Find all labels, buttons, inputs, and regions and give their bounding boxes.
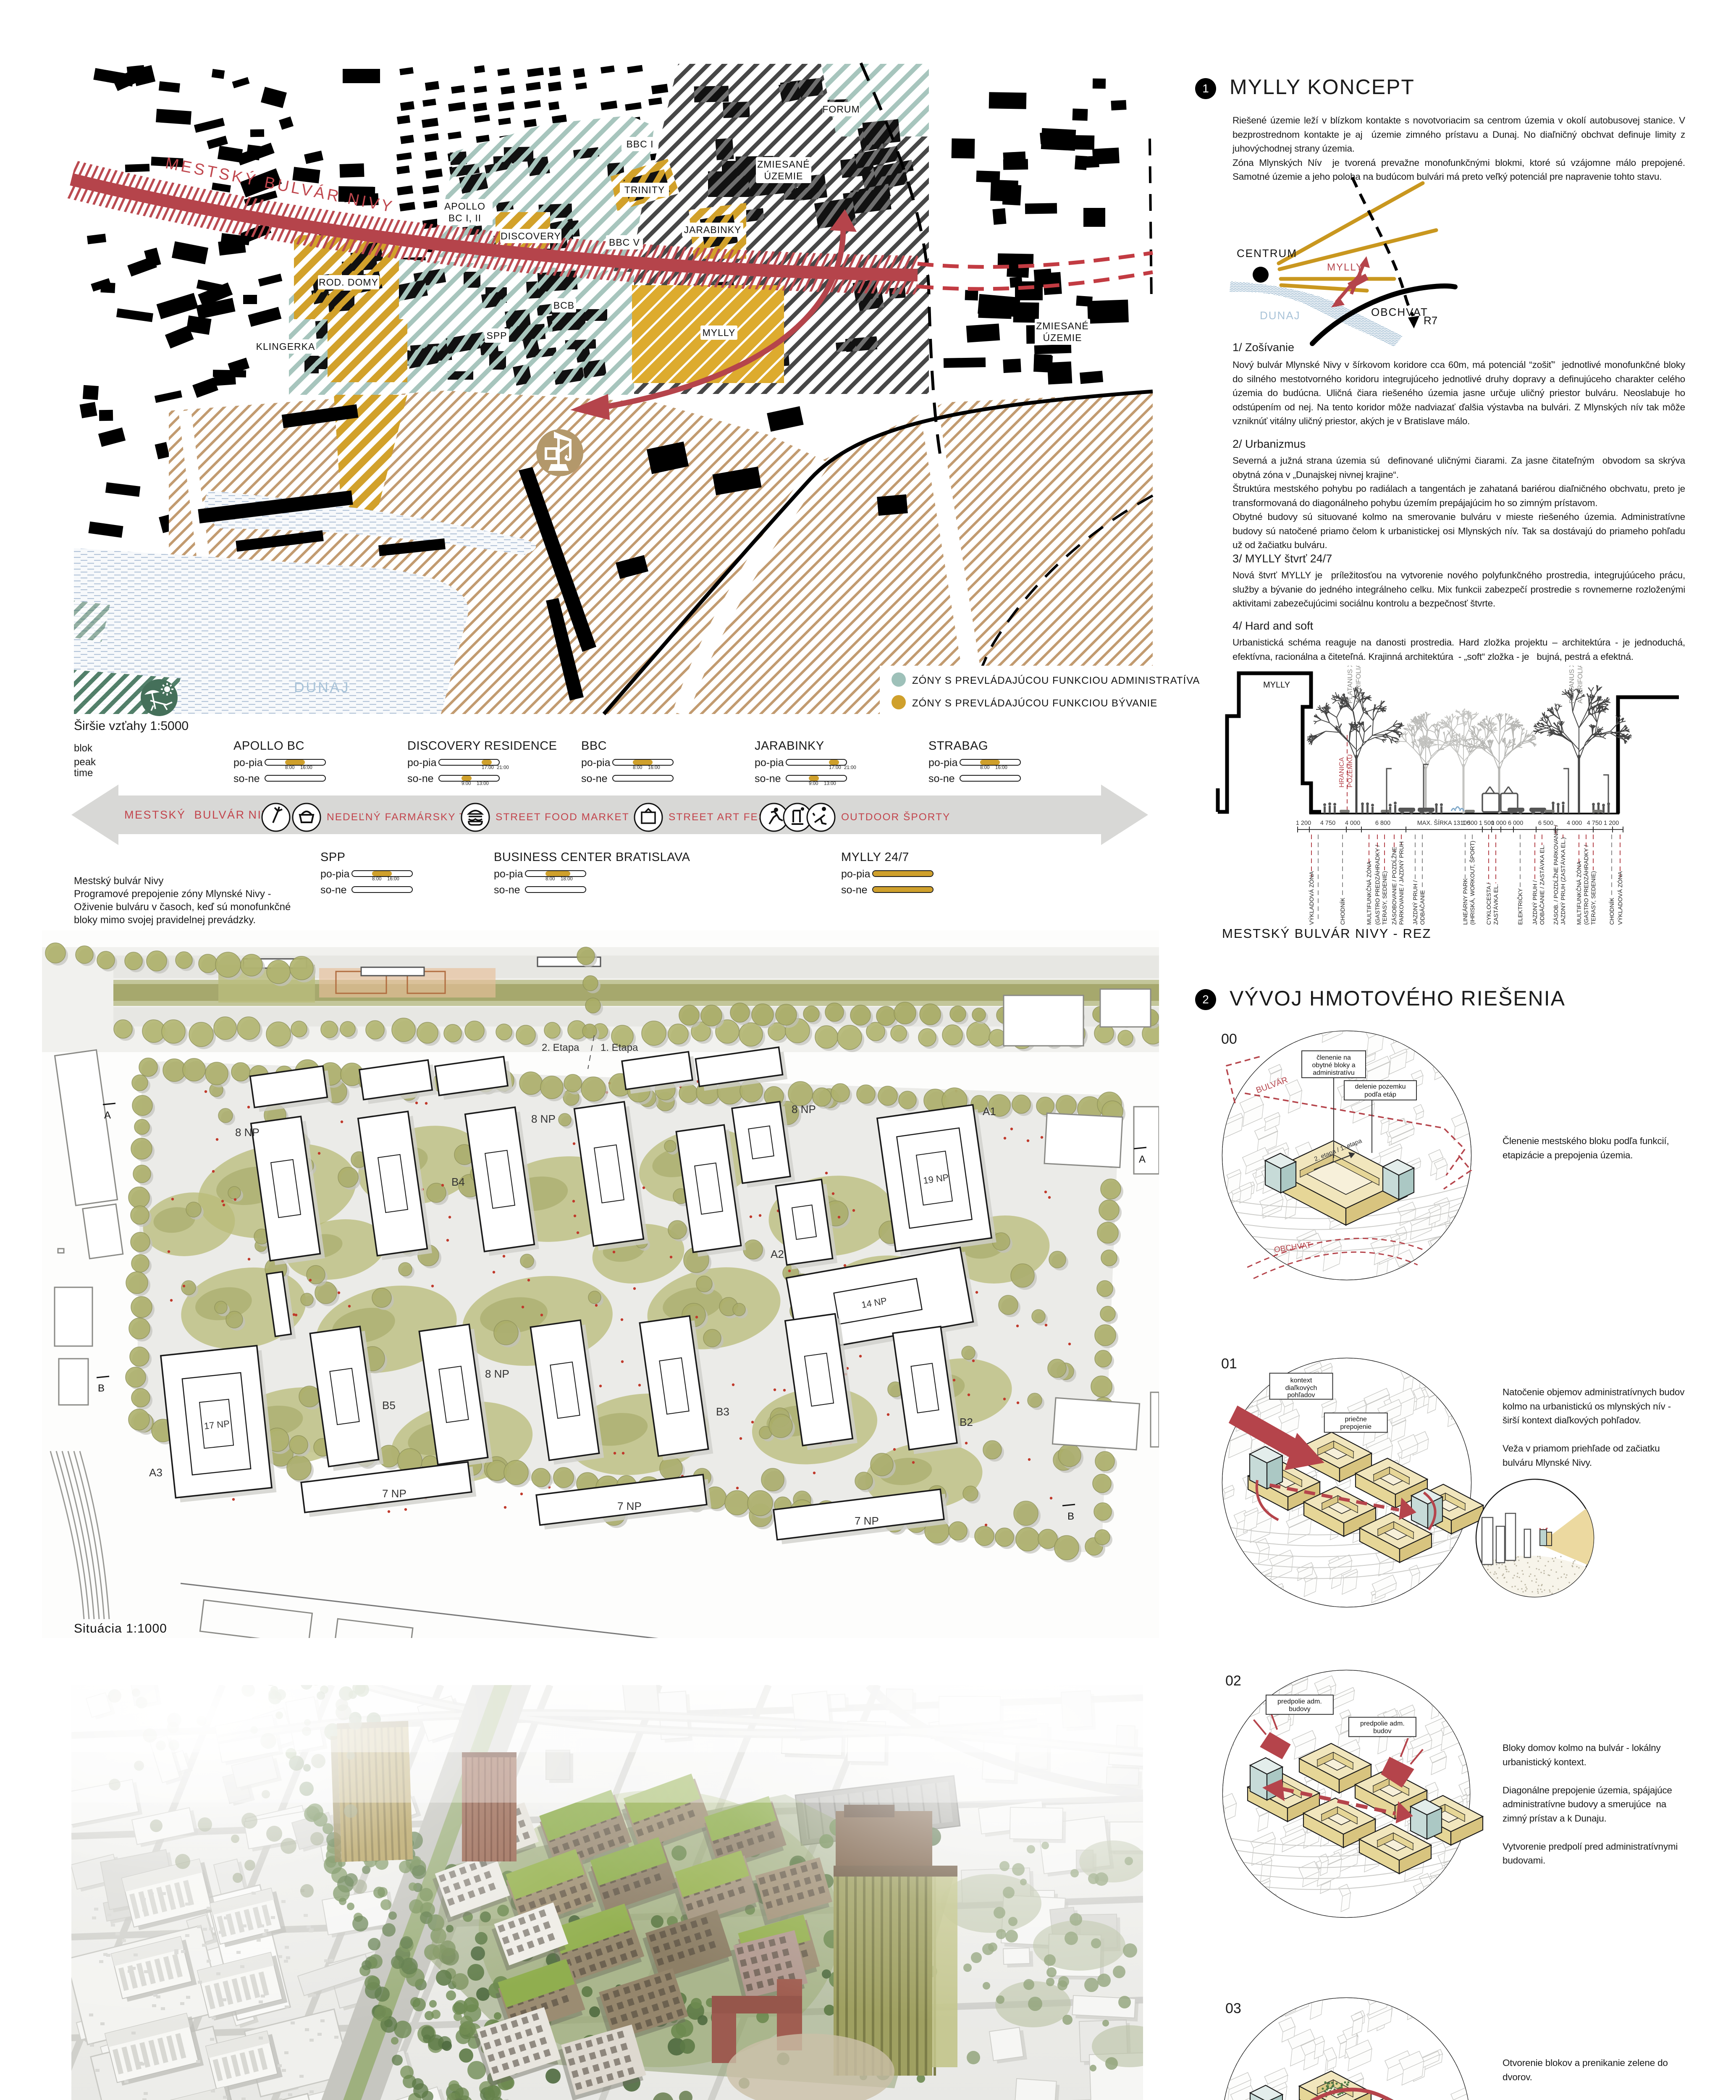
svg-text:ÚZEMIE: ÚZEMIE (1043, 332, 1082, 343)
svg-text:PLATANUS X: PLATANUS X (1347, 666, 1354, 703)
svg-text:KLINGERKA: KLINGERKA (256, 341, 315, 352)
svg-text:1 200: 1 200 (1296, 820, 1311, 827)
svg-text:ACERIFOLIA: ACERIFOLIA (1355, 666, 1362, 703)
svg-text:JAZDNÝ PRUH /: JAZDNÝ PRUH / (1531, 880, 1538, 925)
svg-text:B5: B5 (382, 1399, 396, 1412)
svg-text:PARKOVANIE / JAZDNÝ PRUH: PARKOVANIE / JAZDNÝ PRUH (1398, 841, 1405, 925)
svg-text:CHODNÍK: CHODNÍK (1608, 898, 1615, 925)
svg-text:B: B (98, 1383, 105, 1394)
svg-text:ODBÁČANIE / ZASTÁVKA EL.: ODBÁČANIE / ZASTÁVKA EL. (1539, 845, 1545, 925)
svg-text:ÚZEMIE: ÚZEMIE (764, 171, 803, 181)
svg-text:CYKLOCESTA /: CYKLOCESTA / (1485, 883, 1492, 925)
svg-text:MYLLY: MYLLY (703, 327, 736, 338)
svg-text:MYLLY: MYLLY (1263, 680, 1290, 690)
svg-text:ZASTÁVKA EL.: ZASTÁVKA EL. (1492, 884, 1499, 925)
svg-text:1 500: 1 500 (1462, 820, 1477, 827)
svg-text:obytné bloky a: obytné bloky a (1312, 1062, 1355, 1069)
svg-text:4 750: 4 750 (1320, 820, 1335, 827)
svg-text:BC I, II: BC I, II (448, 213, 481, 223)
svg-text:ZMIESANÉ: ZMIESANÉ (1036, 320, 1089, 331)
svg-text:A3: A3 (149, 1466, 163, 1479)
svg-text:budov: budov (1373, 1728, 1392, 1735)
svg-text:POZEMKU: POZEMKU (1347, 754, 1354, 787)
svg-text:VÝKLADOVÁ ZÓNA: VÝKLADOVÁ ZÓNA (1308, 871, 1315, 925)
svg-text:MULTIFUNKČNÁ ZÓNA: MULTIFUNKČNÁ ZÓNA (1576, 861, 1582, 925)
svg-text:FORUM: FORUM (822, 104, 860, 115)
svg-text:ELEKTRIČKY: ELEKTRIČKY (1517, 888, 1524, 925)
svg-text:TERASY, SEDENIE): TERASY, SEDENIE) (1590, 871, 1597, 925)
svg-text:STREET ART FEST: STREET ART FEST (669, 811, 773, 823)
svg-text:ZÓNY S PREVLÁDAJÚCOU FUNKCIOU: ZÓNY S PREVLÁDAJÚCOU FUNKCIOU BÝVANIE (912, 698, 1157, 709)
svg-text:CENTRUM: CENTRUM (1237, 247, 1297, 260)
svg-text:LINEÁRNY PARK: LINEÁRNY PARK (1462, 878, 1469, 925)
svg-text:(GASTRO PREDZÁHRADKY /: (GASTRO PREDZÁHRADKY / (1583, 845, 1589, 925)
svg-text:DUNAJ: DUNAJ (1260, 309, 1301, 322)
svg-text:B2: B2 (960, 1416, 973, 1428)
svg-text:BCB: BCB (553, 300, 574, 311)
svg-text:priečne: priečne (1345, 1416, 1367, 1423)
svg-text:A: A (1139, 1154, 1146, 1165)
svg-text:A2: A2 (771, 1248, 784, 1260)
svg-text:B4: B4 (451, 1176, 465, 1188)
svg-text:4 000: 4 000 (1567, 820, 1582, 827)
svg-text:DISCOVERY: DISCOVERY (501, 231, 561, 241)
svg-text:JAZDNÝ PRUH (ZASTÁVKA EL.): JAZDNÝ PRUH (ZASTÁVKA EL.) (1560, 837, 1566, 925)
svg-text:(IHRISKÁ, WORKOUT, ŠPORT): (IHRISKÁ, WORKOUT, ŠPORT) (1469, 841, 1476, 925)
svg-text:PLATANUS X: PLATANUS X (1568, 666, 1576, 703)
svg-text:ZÁSOB. / POZDĹŽNE PARKOVANIE /: ZÁSOB. / POZDĹŽNE PARKOVANIE / (1552, 825, 1559, 925)
svg-text:(GASTRO PREDZÁHRADKY /: (GASTRO PREDZÁHRADKY / (1374, 845, 1381, 925)
svg-text:DUNAJ: DUNAJ (294, 680, 350, 696)
svg-text:6 800: 6 800 (1375, 820, 1390, 827)
svg-text:7 NP: 7 NP (855, 1515, 879, 1527)
svg-text:6 500: 6 500 (1538, 820, 1553, 827)
svg-text:ZMIESANÉ: ZMIESANÉ (757, 159, 810, 170)
svg-text:SPP: SPP (486, 330, 507, 341)
svg-text:7 NP: 7 NP (617, 1500, 642, 1512)
svg-text:Situácia 1:1000: Situácia 1:1000 (74, 1622, 167, 1635)
svg-text:predpolie adm.: predpolie adm. (1360, 1720, 1405, 1727)
svg-text:APOLLO: APOLLO (444, 201, 485, 212)
svg-text:7 NP: 7 NP (382, 1487, 406, 1500)
svg-text:B: B (1067, 1511, 1074, 1522)
svg-text:delenie pozemku: delenie pozemku (1355, 1083, 1406, 1090)
svg-text:VÝKLADOVÁ ZÓNA: VÝKLADOVÁ ZÓNA (1617, 871, 1623, 925)
svg-text:JARABINKY: JARABINKY (684, 224, 742, 235)
svg-text:kontext: kontext (1290, 1377, 1312, 1384)
svg-text:členenie na: členenie na (1316, 1054, 1351, 1061)
svg-text:BBC V: BBC V (609, 237, 640, 248)
svg-text:MESTSKÝ BULVÁR NIVY - REZ: MESTSKÝ BULVÁR NIVY - REZ (1222, 926, 1431, 941)
svg-text:JAZDNÝ PRUH /: JAZDNÝ PRUH / (1412, 880, 1419, 925)
svg-text:TERASY, SEDENIE): TERASY, SEDENIE) (1381, 871, 1388, 925)
svg-text:ODBÁČANIE: ODBÁČANIE (1419, 890, 1426, 925)
svg-text:administratívu: administratívu (1313, 1069, 1355, 1076)
svg-text:OBCHVAT: OBCHVAT (1371, 306, 1428, 318)
svg-text:ACERIFOLIA: ACERIFOLIA (1577, 666, 1584, 703)
svg-text:STREET FOOD MARKET: STREET FOOD MARKET (496, 811, 629, 823)
svg-text:pohľadov: pohľadov (1287, 1392, 1315, 1399)
svg-text:8 NP: 8 NP (792, 1103, 816, 1116)
svg-text:MYLLY: MYLLY (1327, 262, 1364, 273)
svg-text:8 NP: 8 NP (235, 1126, 260, 1139)
svg-text:ZÓNY S PREVLÁDAJÚCOU FUNKCIOU: ZÓNY S PREVLÁDAJÚCOU FUNKCIOU ADMINISTRA… (912, 675, 1200, 686)
svg-text:ZÁSOBOVANIE / POZDĹŽNE: ZÁSOBOVANIE / POZDĹŽNE (1391, 847, 1398, 925)
svg-text:BBC I: BBC I (626, 139, 653, 150)
svg-text:MULTIFUNKČNÁ ZÓNA: MULTIFUNKČNÁ ZÓNA (1366, 861, 1372, 925)
svg-text:CHODNÍK: CHODNÍK (1339, 898, 1346, 925)
svg-text:8 NP: 8 NP (485, 1368, 509, 1380)
svg-text:2. Etapa: 2. Etapa (542, 1042, 580, 1053)
svg-text:diaľkových: diaľkových (1285, 1385, 1317, 1392)
svg-text:4 750 1 200: 4 750 1 200 (1587, 820, 1619, 827)
svg-text:ROD. DOMY: ROD. DOMY (319, 277, 378, 288)
svg-text:prepojenie: prepojenie (1340, 1423, 1371, 1431)
svg-text:podľa etáp: podľa etáp (1364, 1091, 1396, 1098)
svg-text:predpolie adm.: predpolie adm. (1277, 1698, 1322, 1705)
svg-text:8 NP: 8 NP (531, 1113, 556, 1125)
svg-text:NEDEĽNÝ FARMÁRSKY TRH: NEDEĽNÝ FARMÁRSKY TRH (327, 811, 483, 823)
svg-text:budovy: budovy (1289, 1706, 1311, 1713)
svg-text:B3: B3 (716, 1405, 729, 1418)
svg-text:1 000 6 000: 1 000 6 000 (1491, 820, 1524, 827)
svg-text:A: A (104, 1110, 111, 1121)
svg-text:TRINITY: TRINITY (624, 184, 665, 195)
svg-text:A1: A1 (983, 1105, 996, 1118)
svg-text:4 000: 4 000 (1345, 820, 1360, 827)
svg-text:1. Etapa: 1. Etapa (601, 1042, 638, 1053)
svg-text:OUTDOOR ŠPORTY: OUTDOOR ŠPORTY (841, 811, 950, 823)
svg-text:HRANICA: HRANICA (1338, 757, 1345, 787)
